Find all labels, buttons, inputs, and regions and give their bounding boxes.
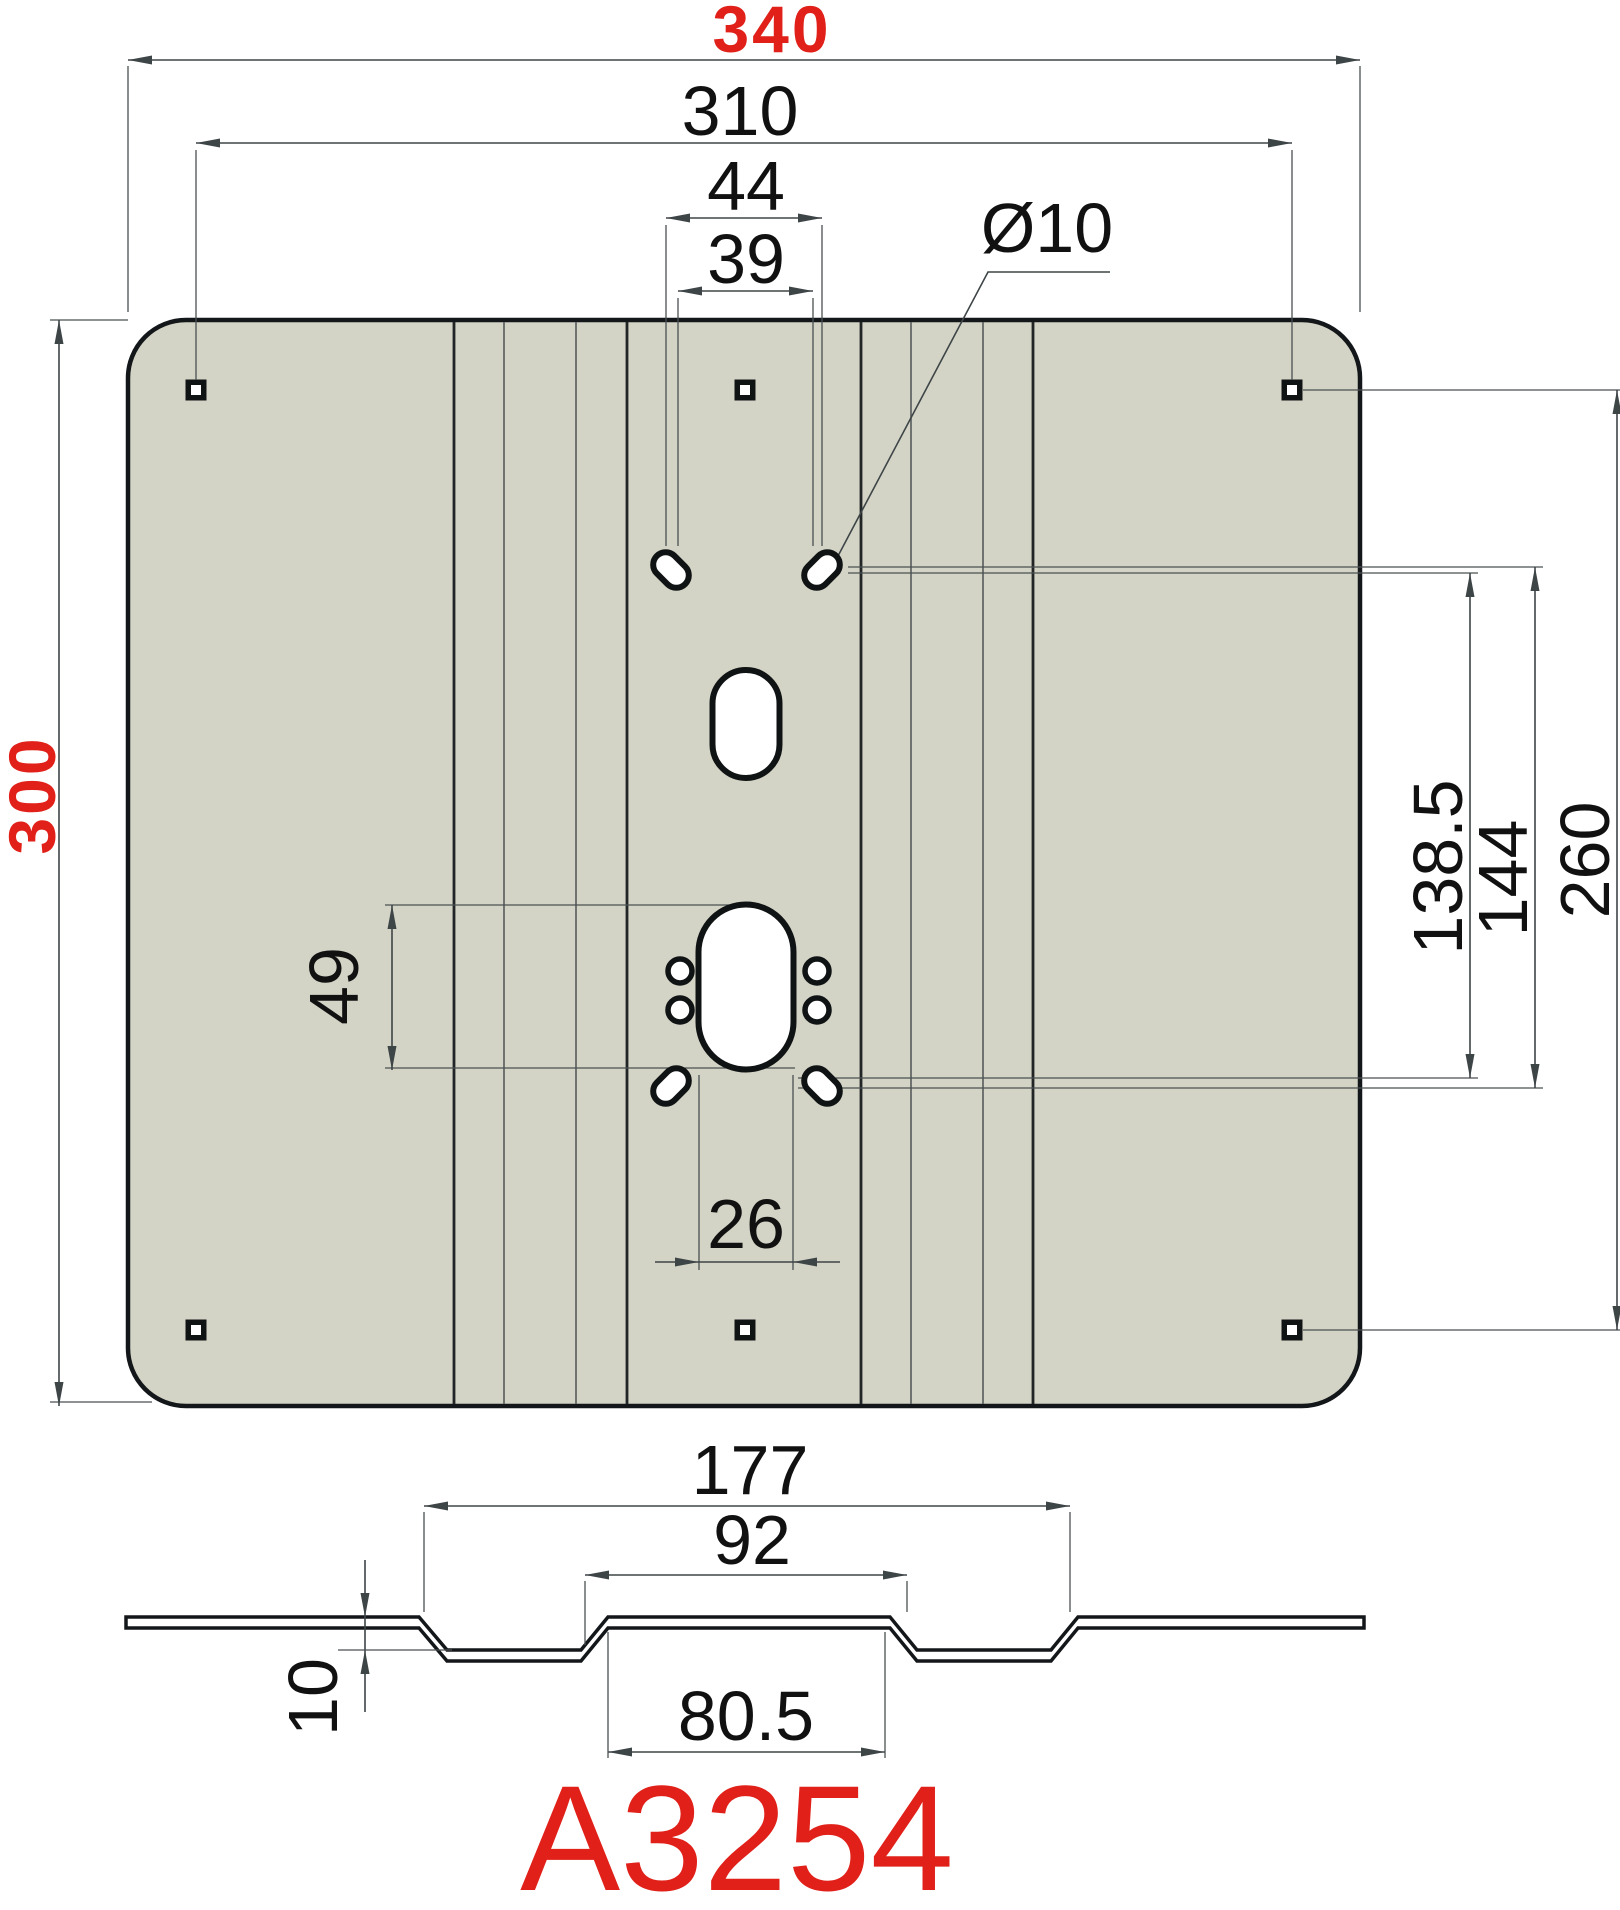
dim-805-label: 80.5 — [678, 1677, 814, 1755]
arrow-340-left — [128, 56, 152, 65]
dim-39-label: 39 — [707, 220, 785, 298]
section-profile — [126, 1617, 1364, 1661]
arrow-144-top — [1531, 567, 1540, 591]
square-hole-top-left — [188, 382, 204, 398]
arrow-10-top — [361, 1593, 370, 1617]
square-hole-bottom-left — [188, 1322, 204, 1338]
circle-hole-right-lower — [805, 998, 829, 1022]
arrow-92-left — [585, 1571, 609, 1580]
arrow-44-left — [666, 214, 690, 223]
dim-dia10-label: Ø10 — [981, 189, 1113, 267]
part-number-label: A3254 — [520, 1754, 954, 1910]
dim-310-label: 310 — [682, 72, 799, 150]
arrow-39-right — [789, 287, 813, 296]
dim-49-label: 49 — [295, 947, 373, 1025]
arrow-92-right — [883, 1571, 907, 1580]
dim-300-label: 300 — [0, 735, 69, 854]
dim-10-label: 10 — [274, 1658, 352, 1736]
circle-hole-left-upper — [668, 959, 692, 983]
dim-340-label: 340 — [712, 0, 831, 66]
arrow-310-left — [196, 139, 220, 148]
square-hole-bottom-right — [1284, 1322, 1300, 1338]
capsule-hole-center — [713, 670, 780, 778]
arrow-300-top — [55, 320, 64, 344]
arrow-177-right — [1046, 1502, 1070, 1511]
arrow-10-bottom — [361, 1650, 370, 1674]
capsule-hole-lower — [699, 905, 794, 1070]
arrow-177-left — [424, 1502, 448, 1511]
square-hole-bottom-middle — [737, 1322, 753, 1338]
arrow-138-bottom — [1466, 1054, 1475, 1078]
technical-drawing-page: 340 310 44 39 Ø10 300 49 — [0, 0, 1620, 1910]
arrow-310-right — [1268, 139, 1292, 148]
dim-260-label: 260 — [1546, 802, 1620, 919]
arrow-340-right — [1336, 56, 1360, 65]
arrow-39-left — [678, 287, 702, 296]
dim-177-label: 177 — [692, 1431, 809, 1509]
dim-26-label: 26 — [707, 1185, 785, 1263]
dim-44-label: 44 — [707, 147, 785, 225]
arrow-138-top — [1466, 573, 1475, 597]
circle-hole-right-upper — [805, 959, 829, 983]
square-hole-top-right — [1284, 382, 1300, 398]
drawing-svg: 340 310 44 39 Ø10 300 49 — [0, 0, 1620, 1910]
dim-144-label: 144 — [1464, 820, 1542, 937]
section-view: 177 92 80.5 10 — [126, 1431, 1364, 1758]
square-hole-top-middle — [737, 382, 753, 398]
arrow-144-bottom — [1531, 1064, 1540, 1088]
dim-92-label: 92 — [713, 1501, 791, 1579]
circle-hole-left-lower — [668, 998, 692, 1022]
top-view — [128, 225, 1620, 1406]
arrow-44-right — [798, 214, 822, 223]
